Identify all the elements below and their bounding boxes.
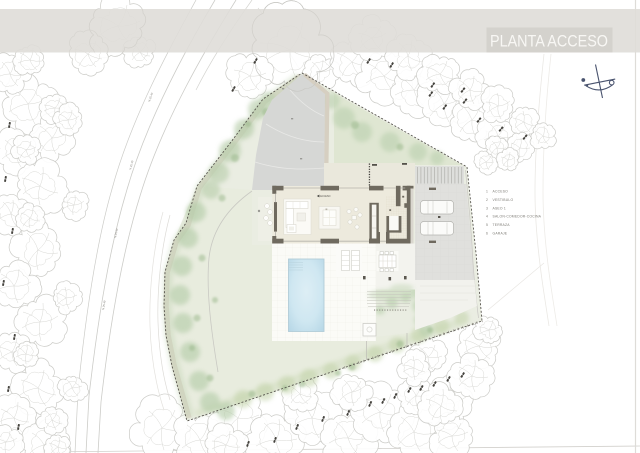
svg-text:3: 3 — [486, 207, 488, 211]
svg-text:SALON-COMEDOR-COCINA: SALON-COMEDOR-COCINA — [493, 215, 542, 219]
svg-text:TERRAZA: TERRAZA — [493, 223, 511, 227]
svg-text:PLANTA ACCESO: PLANTA ACCESO — [490, 33, 608, 51]
svg-text:4: 4 — [486, 215, 488, 219]
svg-text:GARAJE: GARAJE — [493, 232, 508, 236]
svg-text:2: 2 — [486, 198, 488, 202]
svg-text:ASEO 1: ASEO 1 — [493, 207, 506, 211]
svg-text:5: 5 — [486, 223, 488, 227]
svg-text:1: 1 — [486, 190, 488, 194]
svg-text:6: 6 — [486, 232, 488, 236]
svg-text:ACCESO: ACCESO — [320, 195, 331, 198]
svg-text:ACCESO: ACCESO — [493, 190, 509, 194]
svg-text:VESTIBULO: VESTIBULO — [493, 198, 514, 202]
